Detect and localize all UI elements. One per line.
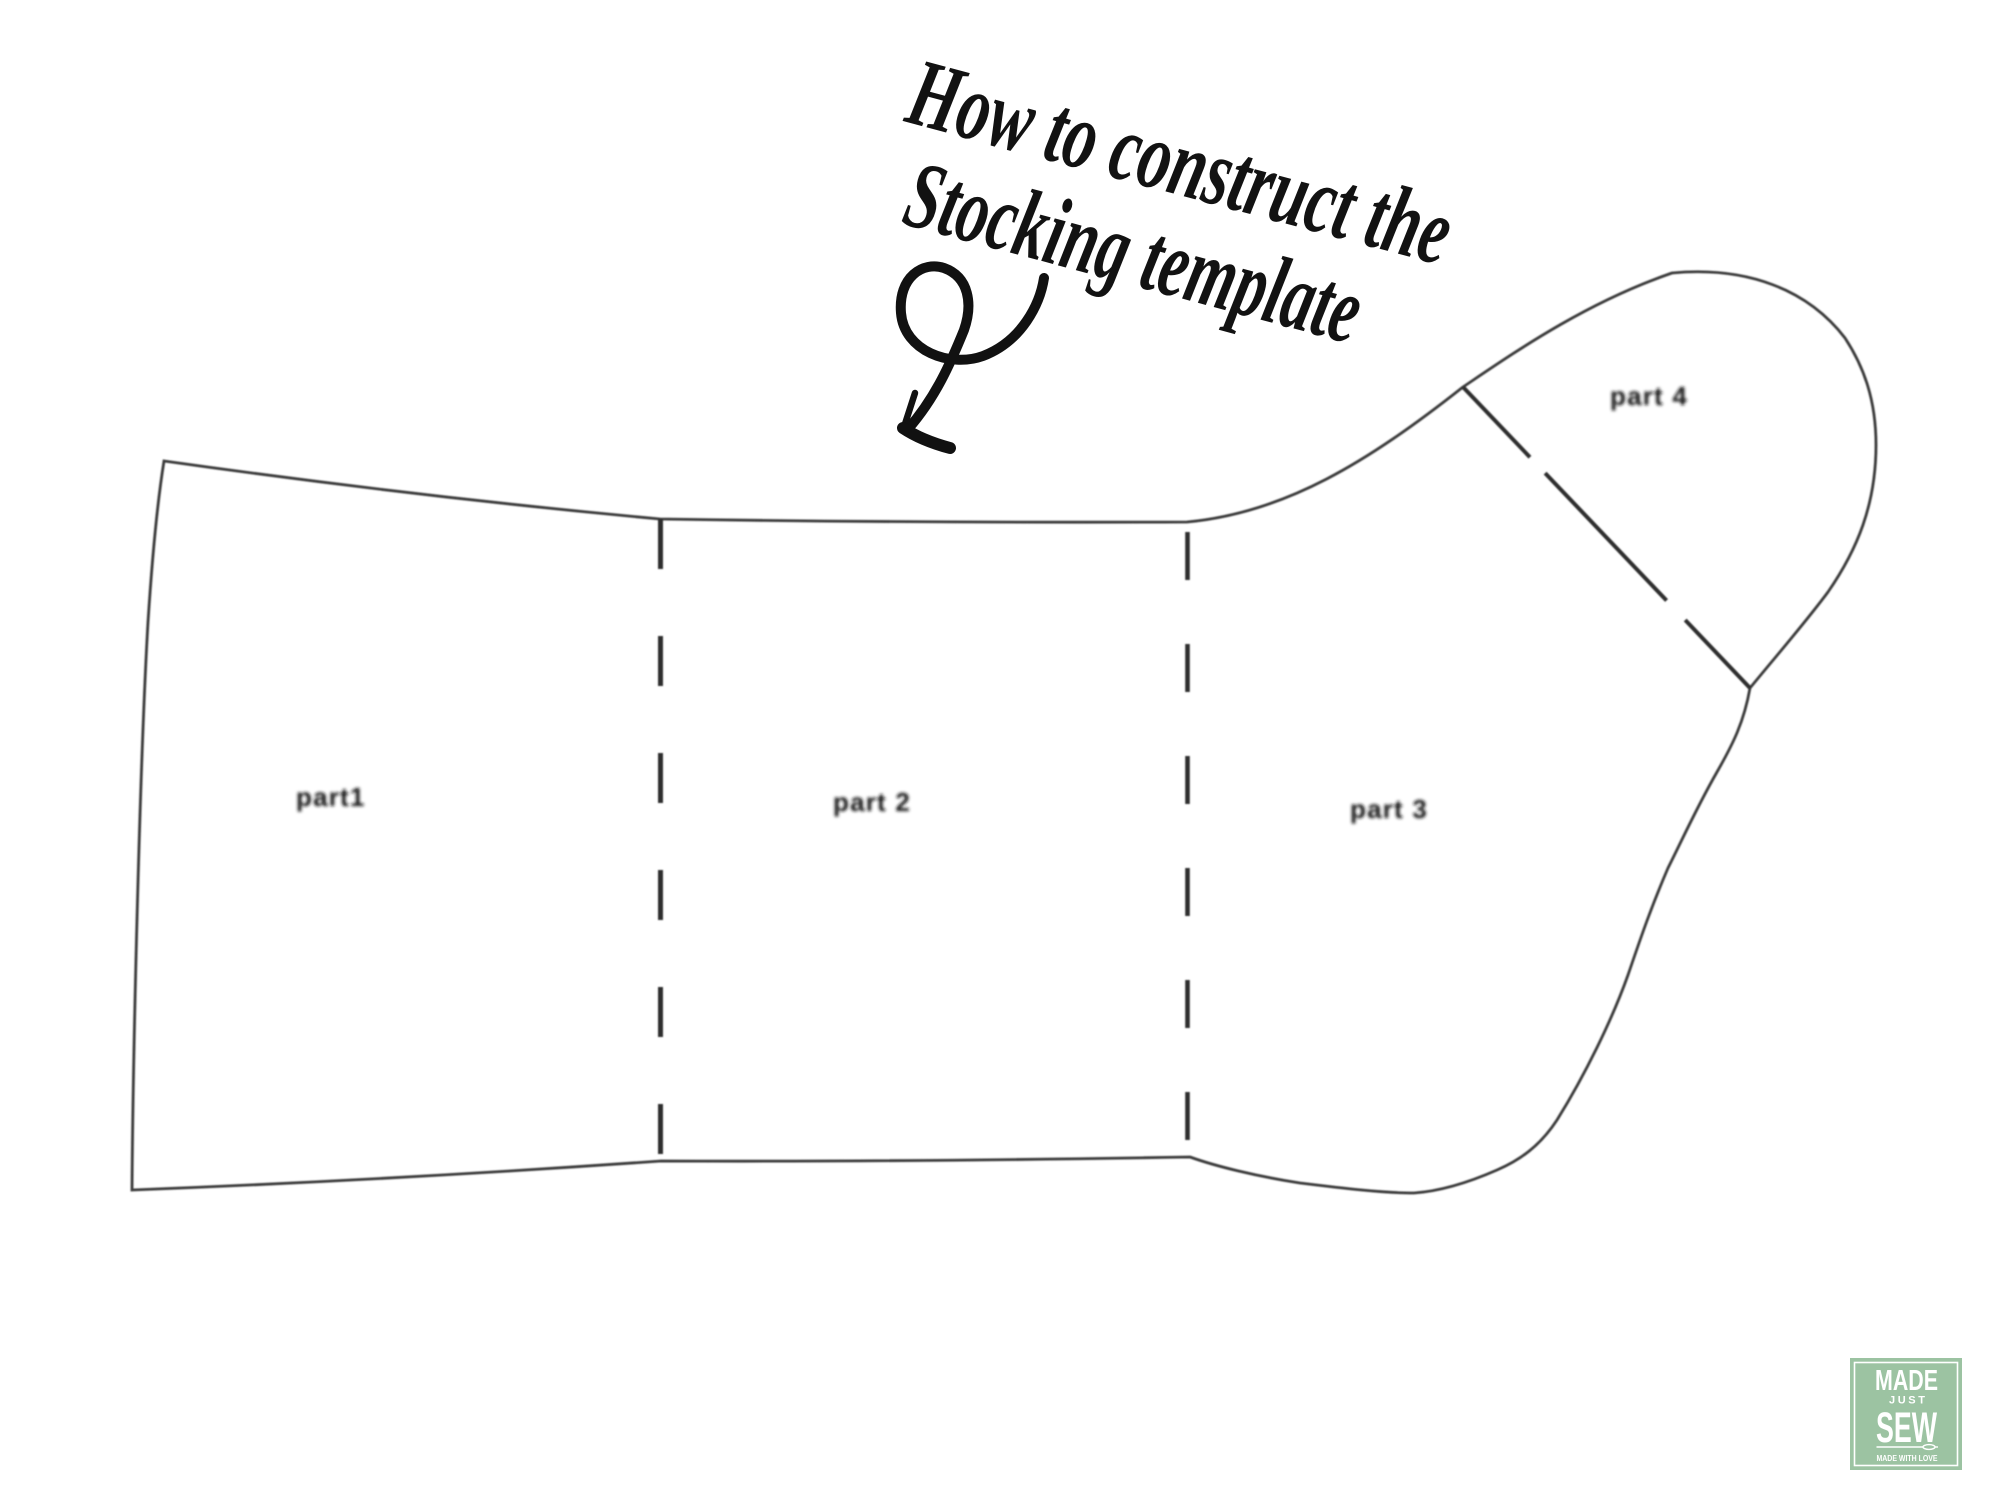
- svg-text:part 3: part 3: [1350, 794, 1428, 824]
- svg-text:part1: part1: [296, 782, 366, 812]
- svg-text:MADE WITH LOVE: MADE WITH LOVE: [1877, 1453, 1938, 1463]
- svg-text:part 4: part 4: [1610, 381, 1688, 411]
- svg-text:MADE: MADE: [1875, 1365, 1938, 1397]
- svg-text:part 2: part 2: [833, 787, 911, 817]
